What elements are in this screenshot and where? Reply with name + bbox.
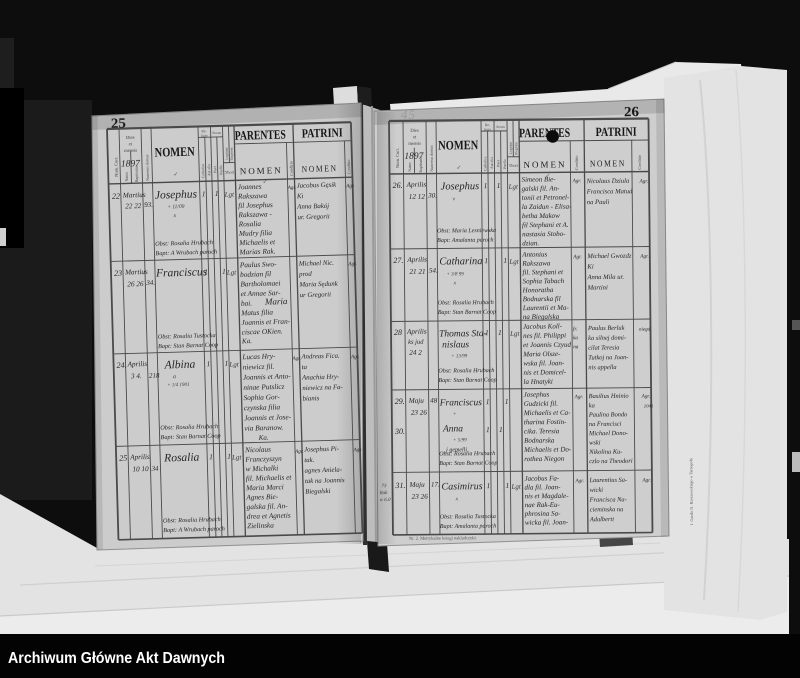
svg-text:17.: 17.: [431, 481, 440, 489]
svg-text:Agr.: Agr.: [287, 185, 297, 191]
svg-text:Catholica: Catholica: [201, 163, 205, 178]
svg-text:Joannis et Anto-: Joannis et Anto-: [243, 371, 291, 381]
svg-text:Obst: Rosalia Hrubach: Obst: Rosalia Hrubach: [438, 300, 494, 307]
svg-text:ta: ta: [302, 364, 308, 371]
svg-text:x: x: [172, 213, 176, 219]
svg-text:la Hnatyki: la Hnatyki: [523, 378, 552, 386]
svg-text:Dies: Dies: [126, 135, 135, 140]
svg-text:Jacobus Gęsik: Jacobus Gęsik: [297, 182, 338, 190]
svg-text:Agr.: Agr.: [641, 394, 651, 400]
svg-text:1041: 1041: [644, 404, 654, 409]
svg-text:1: 1: [484, 256, 488, 265]
svg-text:Thori: Thori: [509, 163, 519, 168]
svg-text:Num. Curr.: Num. Curr.: [395, 148, 400, 168]
svg-text:Biegalski: Biegalski: [305, 488, 331, 496]
svg-text:Anna: Anna: [442, 424, 463, 434]
svg-text:+: +: [453, 411, 457, 417]
svg-text:czlo na Theodori: czlo na Theodori: [589, 458, 633, 465]
svg-text:NOMEN: NOMEN: [240, 165, 283, 176]
svg-text:28: 28: [394, 328, 402, 337]
svg-text:Joannis et Fran-: Joannis et Fran-: [241, 317, 290, 327]
svg-text:Lgt: Lgt: [509, 330, 520, 338]
svg-text:Rosalia: Rosalia: [238, 219, 262, 229]
svg-text:Rok: Rok: [379, 491, 389, 496]
svg-text:nislaus: nislaus: [442, 340, 469, 350]
svg-text:Baptisatus: Baptisatus: [418, 156, 423, 173]
svg-text:Lgt: Lgt: [231, 453, 243, 461]
svg-text:Puella: Puella: [219, 165, 223, 175]
svg-text:Lgt: Lgt: [224, 190, 236, 198]
svg-text:Agr.: Agr.: [572, 254, 582, 260]
svg-text:Maju: Maju: [408, 397, 425, 405]
svg-text:1: 1: [202, 189, 206, 198]
svg-text:niewicz na Fa-: niewicz na Fa-: [302, 384, 343, 392]
svg-text:Michael Dono-: Michael Dono-: [588, 430, 628, 437]
svg-text:54.: 54.: [429, 267, 438, 275]
svg-text:Francisca Na-: Francisca Na-: [589, 496, 627, 503]
svg-text:48: 48: [430, 397, 438, 405]
svg-text:Sexus: Sexus: [496, 125, 505, 129]
svg-text:betha Makow: betha Makow: [522, 212, 560, 220]
svg-text:1: 1: [485, 328, 489, 337]
svg-text:dla fil. Joan-: dla fil. Joan-: [524, 483, 561, 491]
svg-text:w Michalki: w Michalki: [245, 463, 278, 473]
svg-text:1: 1: [498, 328, 502, 337]
svg-text:Maria: Maria: [264, 296, 288, 307]
svg-text:Re-: Re-: [485, 123, 491, 127]
svg-text:Aprilis: Aprilis: [126, 360, 147, 369]
svg-text:Conditio: Conditio: [346, 160, 351, 175]
svg-text:Aprilis: Aprilis: [129, 453, 150, 462]
svg-text:Bapt: Stan Barnat Coop: Bapt: Stan Barnat Coop: [438, 377, 496, 384]
svg-text:26.: 26.: [393, 181, 403, 190]
svg-text:Dies: Dies: [410, 128, 419, 133]
svg-text:31.: 31.: [394, 481, 405, 490]
svg-text:34: 34: [150, 465, 159, 473]
svg-text:na Francisci: na Francisci: [589, 421, 622, 428]
svg-text:NOMEN: NOMEN: [438, 137, 479, 152]
svg-text:Zielinska: Zielinska: [247, 520, 274, 530]
svg-text:Obst: Maria Lesniewska: Obst: Maria Lesniewska: [437, 228, 496, 235]
svg-text:Nr. 2. Metrykalne ksiegi nakla: Nr. 2. Metrykalne ksiegi nakladczyki.: [409, 535, 477, 541]
svg-text:Maria Marci: Maria Marci: [245, 482, 284, 492]
svg-text:tak.: tak.: [304, 457, 314, 464]
svg-text:Agr.: Agr.: [294, 449, 304, 455]
svg-text:Tutkoj na Joan-: Tutkoj na Joan-: [588, 354, 628, 361]
svg-text:73: 73: [381, 484, 387, 489]
svg-text:x: x: [453, 280, 457, 286]
svg-text:Ki: Ki: [586, 264, 593, 271]
svg-text:93.: 93.: [144, 201, 153, 209]
svg-text:galska fil. An-: galska fil. An-: [246, 501, 288, 511]
svg-text:Ka.: Ka.: [258, 434, 269, 442]
svg-text:Rakszawa: Rakszawa: [521, 259, 551, 267]
svg-text:na Pauli: na Pauli: [587, 199, 610, 206]
svg-text:wicki: wicki: [590, 487, 604, 494]
svg-text:Catharina: Catharina: [439, 256, 482, 267]
svg-text:drea et Agnetis: drea et Agnetis: [247, 511, 291, 521]
svg-text:Laurentii et Ma-: Laurentii et Ma-: [522, 304, 570, 312]
svg-text:1: 1: [505, 397, 509, 406]
svg-text:1: 1: [503, 256, 507, 265]
svg-text:Conditio: Conditio: [637, 155, 642, 170]
svg-text:PATRINI: PATRINI: [302, 125, 343, 140]
svg-text:Adalberti: Adalberti: [589, 516, 614, 523]
svg-text:Baptisatus: Baptisatus: [134, 165, 139, 182]
svg-text:tharina Fostin-: tharina Fostin-: [524, 418, 567, 426]
svg-text:Bodnarska fil: Bodnarska fil: [523, 295, 561, 303]
svg-text:Bapt: Amalanta paroch: Bapt: Amalanta paroch: [437, 238, 493, 245]
svg-text:1: 1: [215, 189, 219, 198]
svg-text:Lgt: Lgt: [228, 360, 240, 368]
svg-text:Ki: Ki: [296, 193, 304, 200]
svg-text:Paulina Bondo: Paulina Bondo: [588, 411, 628, 418]
svg-text:ligio: ligio: [484, 128, 491, 132]
svg-text:Numerus domus: Numerus domus: [144, 154, 150, 181]
svg-text:1: 1: [505, 481, 509, 490]
svg-text:1: 1: [204, 267, 208, 276]
svg-text:45: 45: [401, 107, 416, 122]
svg-text:cieminska na: cieminska na: [590, 506, 624, 513]
svg-text:1: 1: [227, 452, 231, 461]
svg-text:Agr.: Agr.: [345, 183, 355, 189]
svg-text:22 22: 22 22: [125, 202, 142, 210]
svg-text:34.: 34.: [145, 279, 155, 287]
svg-text:29.: 29.: [395, 397, 405, 406]
svg-text:Bodnarska: Bodnarska: [524, 436, 555, 444]
svg-text:Joannes: Joannes: [238, 182, 262, 192]
svg-text:et Joannis Czyud: et Joannis Czyud: [523, 341, 571, 349]
svg-text:Puella: Puella: [503, 159, 507, 169]
svg-text:fil. Michaelis et: fil. Michaelis et: [246, 472, 293, 482]
svg-text:ur. Gregorii: ur. Gregorii: [297, 213, 330, 221]
svg-text:Bapt: Stan Barnat Coop: Bapt: Stan Barnat Coop: [438, 309, 496, 316]
svg-text:PARENTES: PARENTES: [235, 127, 286, 143]
svg-text:Agr.: Agr.: [639, 254, 649, 260]
svg-text:Paulus Berluk: Paulus Berluk: [587, 325, 625, 332]
svg-text:Illegitimi: Illegitimi: [230, 147, 234, 160]
svg-text:10 10: 10 10: [132, 465, 149, 473]
svg-text:Conditio: Conditio: [574, 156, 579, 171]
svg-text:Aut alia: Aut alia: [207, 164, 211, 177]
svg-text:Martius: Martius: [124, 268, 148, 277]
svg-text:Thomas Sta-: Thomas Sta-: [439, 329, 487, 339]
svg-text:via Baranow.: via Baranow.: [244, 423, 283, 433]
svg-text:+ 11/09: + 11/09: [167, 204, 185, 210]
svg-text:Agr.: Agr.: [639, 179, 649, 185]
svg-text:Agr.: Agr.: [350, 354, 360, 360]
svg-text:Franciscus: Franciscus: [439, 398, 483, 408]
svg-text:Honoratha: Honoratha: [522, 286, 554, 294]
svg-text:wicka fil. Joan-: wicka fil. Joan-: [525, 518, 569, 526]
svg-text:Marias Rak.: Marias Rak.: [238, 246, 275, 256]
svg-text:Matus filia: Matus filia: [240, 307, 273, 317]
svg-text:Martius: Martius: [122, 191, 146, 200]
svg-text:Agr.: Agr.: [291, 356, 301, 362]
svg-text:galski fil. An-: galski fil. An-: [522, 184, 561, 192]
svg-text:Aut alia: Aut alia: [490, 157, 494, 169]
svg-text:Basilius Hninio: Basilius Hninio: [589, 393, 629, 400]
svg-text:Nikolina Ku-: Nikolina Ku-: [588, 449, 622, 456]
svg-text:Natus: Natus: [124, 172, 129, 182]
svg-text:Josephus: Josephus: [441, 181, 480, 192]
svg-text:PATRINI: PATRINI: [596, 125, 637, 139]
svg-text:30.: 30.: [394, 427, 405, 436]
svg-text:27.: 27.: [393, 256, 403, 265]
svg-text:nis appella: nis appella: [588, 364, 616, 371]
svg-text:Michael Nic.: Michael Nic.: [298, 260, 335, 268]
svg-text:NOMEN: NOMEN: [523, 159, 566, 169]
svg-text:Antonius: Antonius: [521, 250, 547, 258]
svg-text:PARENTES: PARENTES: [519, 125, 570, 140]
svg-text:1: 1: [224, 359, 228, 368]
svg-text:x: x: [455, 496, 459, 502]
svg-text:fil. Stephani et: fil. Stephani et: [522, 268, 564, 276]
svg-text:Sophia Gor-: Sophia Gor-: [243, 392, 280, 402]
svg-text:+ 13/99: + 13/99: [451, 354, 468, 359]
svg-text:Conditio: Conditio: [288, 161, 293, 176]
svg-text:Aprilis: Aprilis: [406, 181, 427, 189]
svg-text:Jacobus Koll-: Jacobus Koll-: [523, 322, 563, 330]
svg-text:+ 5/99: + 5/99: [453, 438, 467, 443]
svg-text:Natus: Natus: [407, 162, 412, 172]
svg-text:1: 1: [497, 181, 501, 190]
svg-text:Paulus Swo-: Paulus Swo-: [239, 259, 277, 269]
svg-text:Gudzicki fil.: Gudzicki fil.: [524, 400, 559, 408]
svg-text:fr.: fr.: [573, 325, 578, 332]
svg-text:Bapt: Stan Barnat Coop: Bapt: Stan Barnat Coop: [439, 460, 497, 467]
svg-text:Thori: Thori: [225, 169, 235, 174]
svg-text:Puer: Puer: [213, 165, 217, 173]
svg-text:Simeon Bie-: Simeon Bie-: [522, 175, 557, 183]
svg-text:12 12: 12 12: [409, 193, 426, 201]
svg-text:mensis: mensis: [124, 148, 137, 153]
svg-text:bai.: bai.: [241, 298, 253, 307]
svg-text:Obst: Rosalia Hrubach: Obst: Rosalia Hrubach: [438, 368, 494, 375]
svg-text:✓: ✓: [173, 172, 178, 178]
svg-text:wska fil. Joan-: wska fil. Joan-: [523, 359, 565, 367]
svg-text:Agr.: Agr.: [641, 477, 651, 483]
svg-text:1: 1: [222, 267, 226, 276]
svg-text:Franciscus: Franciscus: [155, 266, 208, 279]
svg-text:Albina: Albina: [163, 359, 195, 372]
svg-text:Anna Bakój: Anna Bakój: [296, 203, 329, 211]
svg-text:Agnes Bie-: Agnes Bie-: [245, 492, 279, 502]
svg-text:Archiwum Główne Akt Dawnych: Archiwum Główne Akt Dawnych: [8, 650, 225, 667]
svg-text:Joannis et Jose-: Joannis et Jose-: [244, 412, 292, 422]
svg-text:Andreas Fica.: Andreas Fica.: [300, 353, 340, 361]
svg-text:3 4.: 3 4.: [130, 372, 142, 380]
svg-text:Rakszawa -: Rakszawa -: [237, 209, 272, 219]
svg-text:ka silnej domi-: ka silnej domi-: [588, 335, 626, 342]
svg-text:la Zaidun - Elisa-: la Zaidun - Elisa-: [522, 203, 572, 211]
svg-text:Rosalia: Rosalia: [163, 452, 200, 465]
svg-text:NOMEN: NOMEN: [154, 144, 195, 160]
svg-text:nastasia Stobo-: nastasia Stobo-: [522, 230, 566, 238]
svg-text:ur Gregorii: ur Gregorii: [300, 291, 332, 299]
svg-text:ka: ka: [573, 335, 578, 341]
svg-text:na: na: [573, 344, 579, 350]
svg-text:Numerus domus: Numerus domus: [429, 145, 434, 172]
svg-text:Lgt: Lgt: [510, 483, 521, 491]
svg-text:niegd.: niegd.: [639, 327, 651, 332]
svg-text:Obst: Rosalia Hrubach: Obst: Rosalia Hrubach: [439, 451, 495, 458]
svg-text:NOMEN: NOMEN: [590, 158, 626, 168]
svg-text:+ 1/4 1901: + 1/4 1901: [167, 383, 189, 389]
svg-text:1: 1: [486, 425, 490, 434]
svg-text:Maria Sędunk: Maria Sędunk: [298, 281, 338, 289]
svg-text:26 26: 26 26: [127, 280, 144, 288]
svg-text:Obst: Rosalia Tustocka: Obst: Rosalia Tustocka: [440, 514, 496, 521]
svg-text:24.: 24.: [116, 361, 126, 370]
svg-text:a: a: [173, 374, 176, 380]
svg-text:Franczyszyn: Franczyszyn: [244, 454, 282, 464]
svg-text:1: 1: [484, 181, 488, 190]
svg-text:Jacobus Fa-: Jacobus Fa-: [524, 474, 560, 482]
svg-text:cika. Teresia: cika. Teresia: [524, 427, 560, 435]
svg-text:Num. Curr.: Num. Curr.: [113, 157, 119, 177]
svg-text:bodzian fil: bodzian fil: [240, 269, 271, 279]
svg-text:218: 218: [149, 372, 160, 380]
svg-text:Nicolaus Dziula: Nicolaus Dziula: [586, 178, 630, 185]
svg-text:1: 1: [209, 452, 213, 461]
svg-text:Legitimi: Legitimi: [509, 142, 513, 154]
svg-text:NOMEN: NOMEN: [302, 163, 338, 174]
svg-text:Ka.: Ka.: [241, 337, 252, 345]
svg-text:ciscae OKien.: ciscae OKien.: [242, 326, 283, 336]
svg-text:+ 3/8 99: + 3/8 99: [446, 272, 464, 277]
svg-text:25: 25: [119, 454, 127, 463]
svg-text:Maju: Maju: [408, 481, 425, 489]
svg-text:Agr.: Agr.: [347, 261, 357, 267]
svg-text:Anna Mila ur.: Anna Mila ur.: [586, 274, 624, 281]
svg-text:Puer: Puer: [496, 159, 500, 167]
svg-text:Lgt: Lgt: [226, 268, 238, 276]
svg-text:agnes Aniela-: agnes Aniela-: [305, 467, 343, 475]
svg-text:ligio: ligio: [201, 134, 208, 138]
svg-text:Anachia Hry-: Anachia Hry-: [301, 374, 340, 382]
svg-text:mensis: mensis: [408, 141, 421, 146]
svg-text:Josephus: Josephus: [524, 390, 550, 398]
svg-text:Martini: Martini: [587, 284, 608, 291]
svg-text:Bartholomaei: Bartholomaei: [240, 278, 280, 288]
svg-text:rothea Niegon: rothea Niegon: [524, 455, 565, 463]
svg-text:ks jud: ks jud: [408, 339, 424, 346]
svg-text:Michaelis et Ca-: Michaelis et Ca-: [523, 409, 571, 417]
svg-text:✓: ✓: [262, 180, 267, 186]
svg-text:Rakszawa: Rakszawa: [237, 191, 268, 201]
svg-text:prod: prod: [298, 271, 312, 278]
svg-text:30.: 30.: [427, 192, 437, 200]
svg-text:21 21: 21 21: [409, 268, 425, 276]
svg-text:23: 23: [114, 269, 122, 278]
svg-text:na Biegalska: na Biegalska: [523, 313, 560, 321]
svg-text:Aprilis: Aprilis: [406, 256, 427, 264]
svg-text:1: 1: [206, 359, 210, 368]
svg-text:Catholica: Catholica: [483, 156, 487, 171]
svg-text:Agr.: Agr.: [572, 178, 582, 184]
svg-text:Lucas Hry-: Lucas Hry-: [241, 351, 276, 361]
svg-text:Sophia Tabach: Sophia Tabach: [523, 277, 565, 285]
svg-text:Aprilis: Aprilis: [406, 328, 427, 336]
svg-text:nae Rak-Eu-: nae Rak-Eu-: [525, 501, 561, 509]
svg-text:cilat Teresia: cilat Teresia: [588, 344, 619, 351]
svg-text:czynska filia: czynska filia: [244, 402, 281, 412]
svg-text:Josephus Pi-: Josephus Pi-: [304, 446, 340, 454]
svg-text:Francisca Matud: Francisca Matud: [586, 188, 633, 195]
svg-text:Legitimi: Legitimi: [225, 148, 229, 160]
svg-text:J. Gazda 31. Rzeszowskiego w T: J. Gazda 31. Rzeszowskiego w Tarnopolu: [688, 458, 694, 525]
svg-text:Sexus: Sexus: [212, 131, 221, 135]
svg-text:Agr.: Agr.: [574, 394, 584, 400]
svg-text:Maria Olsze-: Maria Olsze-: [522, 350, 561, 358]
svg-text:Laurentius Sa-: Laurentius Sa-: [588, 477, 627, 484]
svg-text:1: 1: [499, 425, 503, 434]
svg-text:Agr.: Agr.: [574, 478, 584, 484]
svg-text:22: 22: [112, 192, 120, 201]
svg-text:ninae Putslicz: ninae Putslicz: [243, 382, 285, 392]
svg-text:Illegitimi: Illegitimi: [514, 142, 518, 155]
svg-text:Michaelis et Do-: Michaelis et Do-: [523, 445, 572, 453]
svg-text:23 26: 23 26: [411, 409, 428, 417]
svg-text:phrosina Sa-: phrosina Sa-: [524, 510, 561, 518]
svg-text:niewicz fil.: niewicz fil.: [243, 362, 275, 372]
svg-text:fil Stephani et A.: fil Stephani et A.: [522, 221, 569, 229]
svg-text:1: 1: [486, 397, 490, 406]
svg-text:✓: ✓: [456, 165, 461, 171]
svg-text:Agr.: Agr.: [352, 447, 362, 453]
svg-text:Lgt: Lgt: [508, 258, 519, 266]
svg-text:24 2: 24 2: [409, 349, 422, 357]
svg-text:Lgt: Lgt: [508, 183, 519, 191]
svg-text:Casimirus: Casimirus: [441, 481, 482, 492]
svg-text:nis et Domicel-: nis et Domicel-: [523, 368, 567, 376]
svg-text:tonii et Petronel-: tonii et Petronel-: [522, 193, 570, 201]
svg-text:w 6.0: w 6.0: [380, 498, 391, 503]
svg-text:bianis: bianis: [303, 395, 320, 402]
svg-text:nes fil. Philippi: nes fil. Philippi: [523, 332, 566, 340]
svg-text:Michael Gwozdz: Michael Gwozdz: [586, 253, 632, 260]
svg-text:Nicolaus: Nicolaus: [244, 445, 271, 455]
svg-text:dzian.: dzian.: [522, 239, 539, 247]
svg-text:Josephus: Josephus: [155, 188, 198, 201]
svg-text:tak na Joannis: tak na Joannis: [305, 477, 345, 485]
svg-text:1: 1: [486, 481, 490, 490]
svg-text:nis et Magdale-: nis et Magdale-: [525, 492, 570, 500]
svg-text:23 26: 23 26: [412, 493, 429, 501]
svg-text:ka: ka: [589, 402, 595, 409]
svg-text:Bapt: Amalanta paroch: Bapt: Amalanta paroch: [440, 523, 496, 530]
svg-text:wski: wski: [589, 439, 601, 446]
